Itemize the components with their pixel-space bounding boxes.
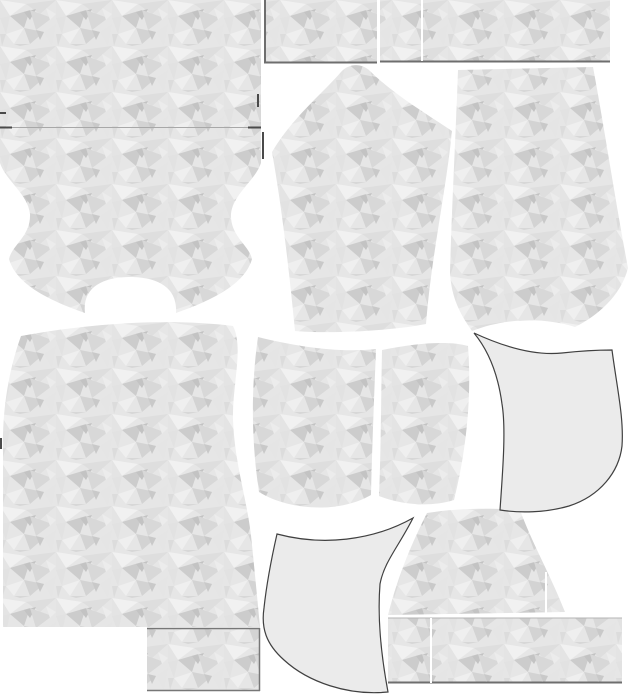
pocket-bag-left — [253, 337, 376, 507]
leg-panel — [450, 67, 628, 331]
panel-top-right — [380, 0, 610, 62]
pocket-bag-right — [379, 343, 469, 504]
yoke-panel — [0, 128, 261, 313]
pocket-facing-right — [474, 333, 622, 512]
bodice-panel — [3, 322, 260, 627]
gusset-panel — [388, 509, 565, 615]
sleeve-panel — [272, 65, 452, 332]
panel-bottom-right — [388, 618, 622, 683]
pattern-layout-canvas — [0, 0, 628, 700]
panel-top-left — [0, 0, 261, 127]
panel-top-middle — [264, 0, 377, 63]
panel-bottom-left-strip — [147, 628, 260, 691]
marker-layout-svg — [0, 0, 628, 700]
